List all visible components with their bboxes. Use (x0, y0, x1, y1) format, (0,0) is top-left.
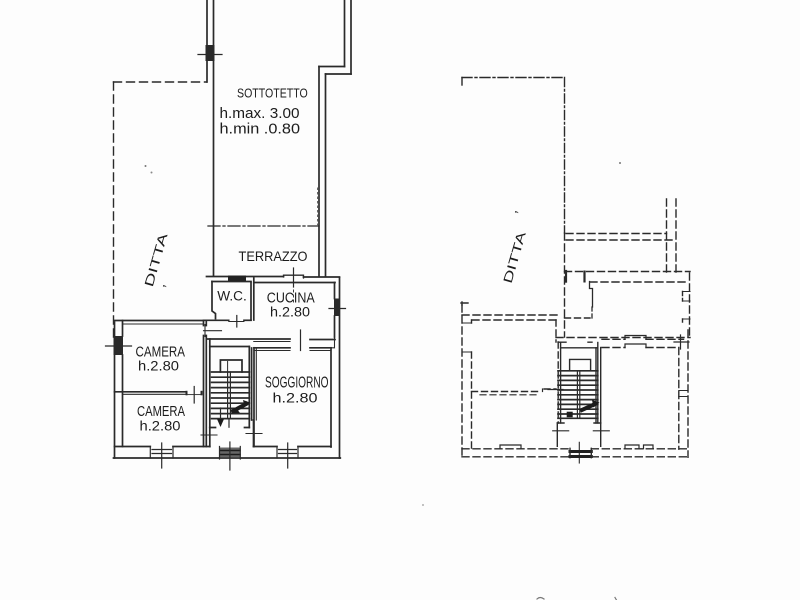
svg-text:SOTTOTETTO: SOTTOTETTO (237, 85, 308, 100)
svg-text:,: , (504, 207, 520, 215)
svg-text:h.2.80: h.2.80 (140, 417, 181, 433)
svg-text:DITTA: DITTA (501, 229, 529, 285)
svg-text:h.min .0.80: h.min .0.80 (220, 120, 301, 137)
svg-text:h.2.80: h.2.80 (270, 304, 310, 320)
svg-text:h.2.80: h.2.80 (273, 390, 318, 406)
svg-text:DITTA: DITTA (142, 231, 171, 289)
svg-text:h.2.80: h.2.80 (138, 358, 179, 374)
svg-text:TERRAZZO: TERRAZZO (239, 248, 308, 264)
svg-text:W.C.: W.C. (217, 288, 247, 303)
